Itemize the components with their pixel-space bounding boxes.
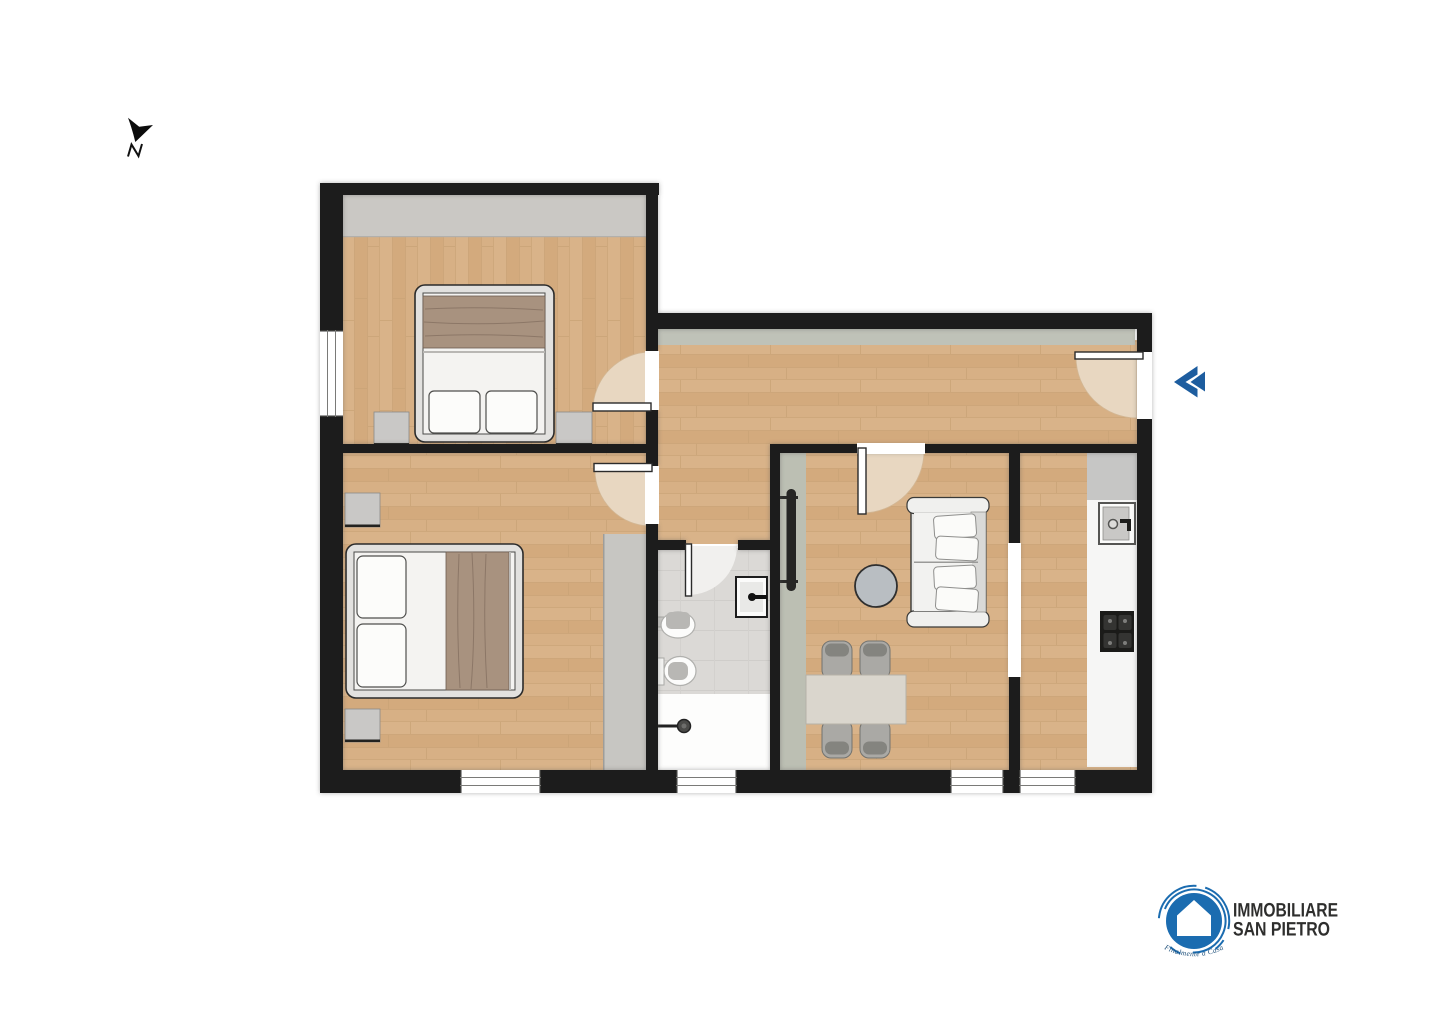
svg-text:SAN PIETRO: SAN PIETRO xyxy=(1233,919,1330,941)
